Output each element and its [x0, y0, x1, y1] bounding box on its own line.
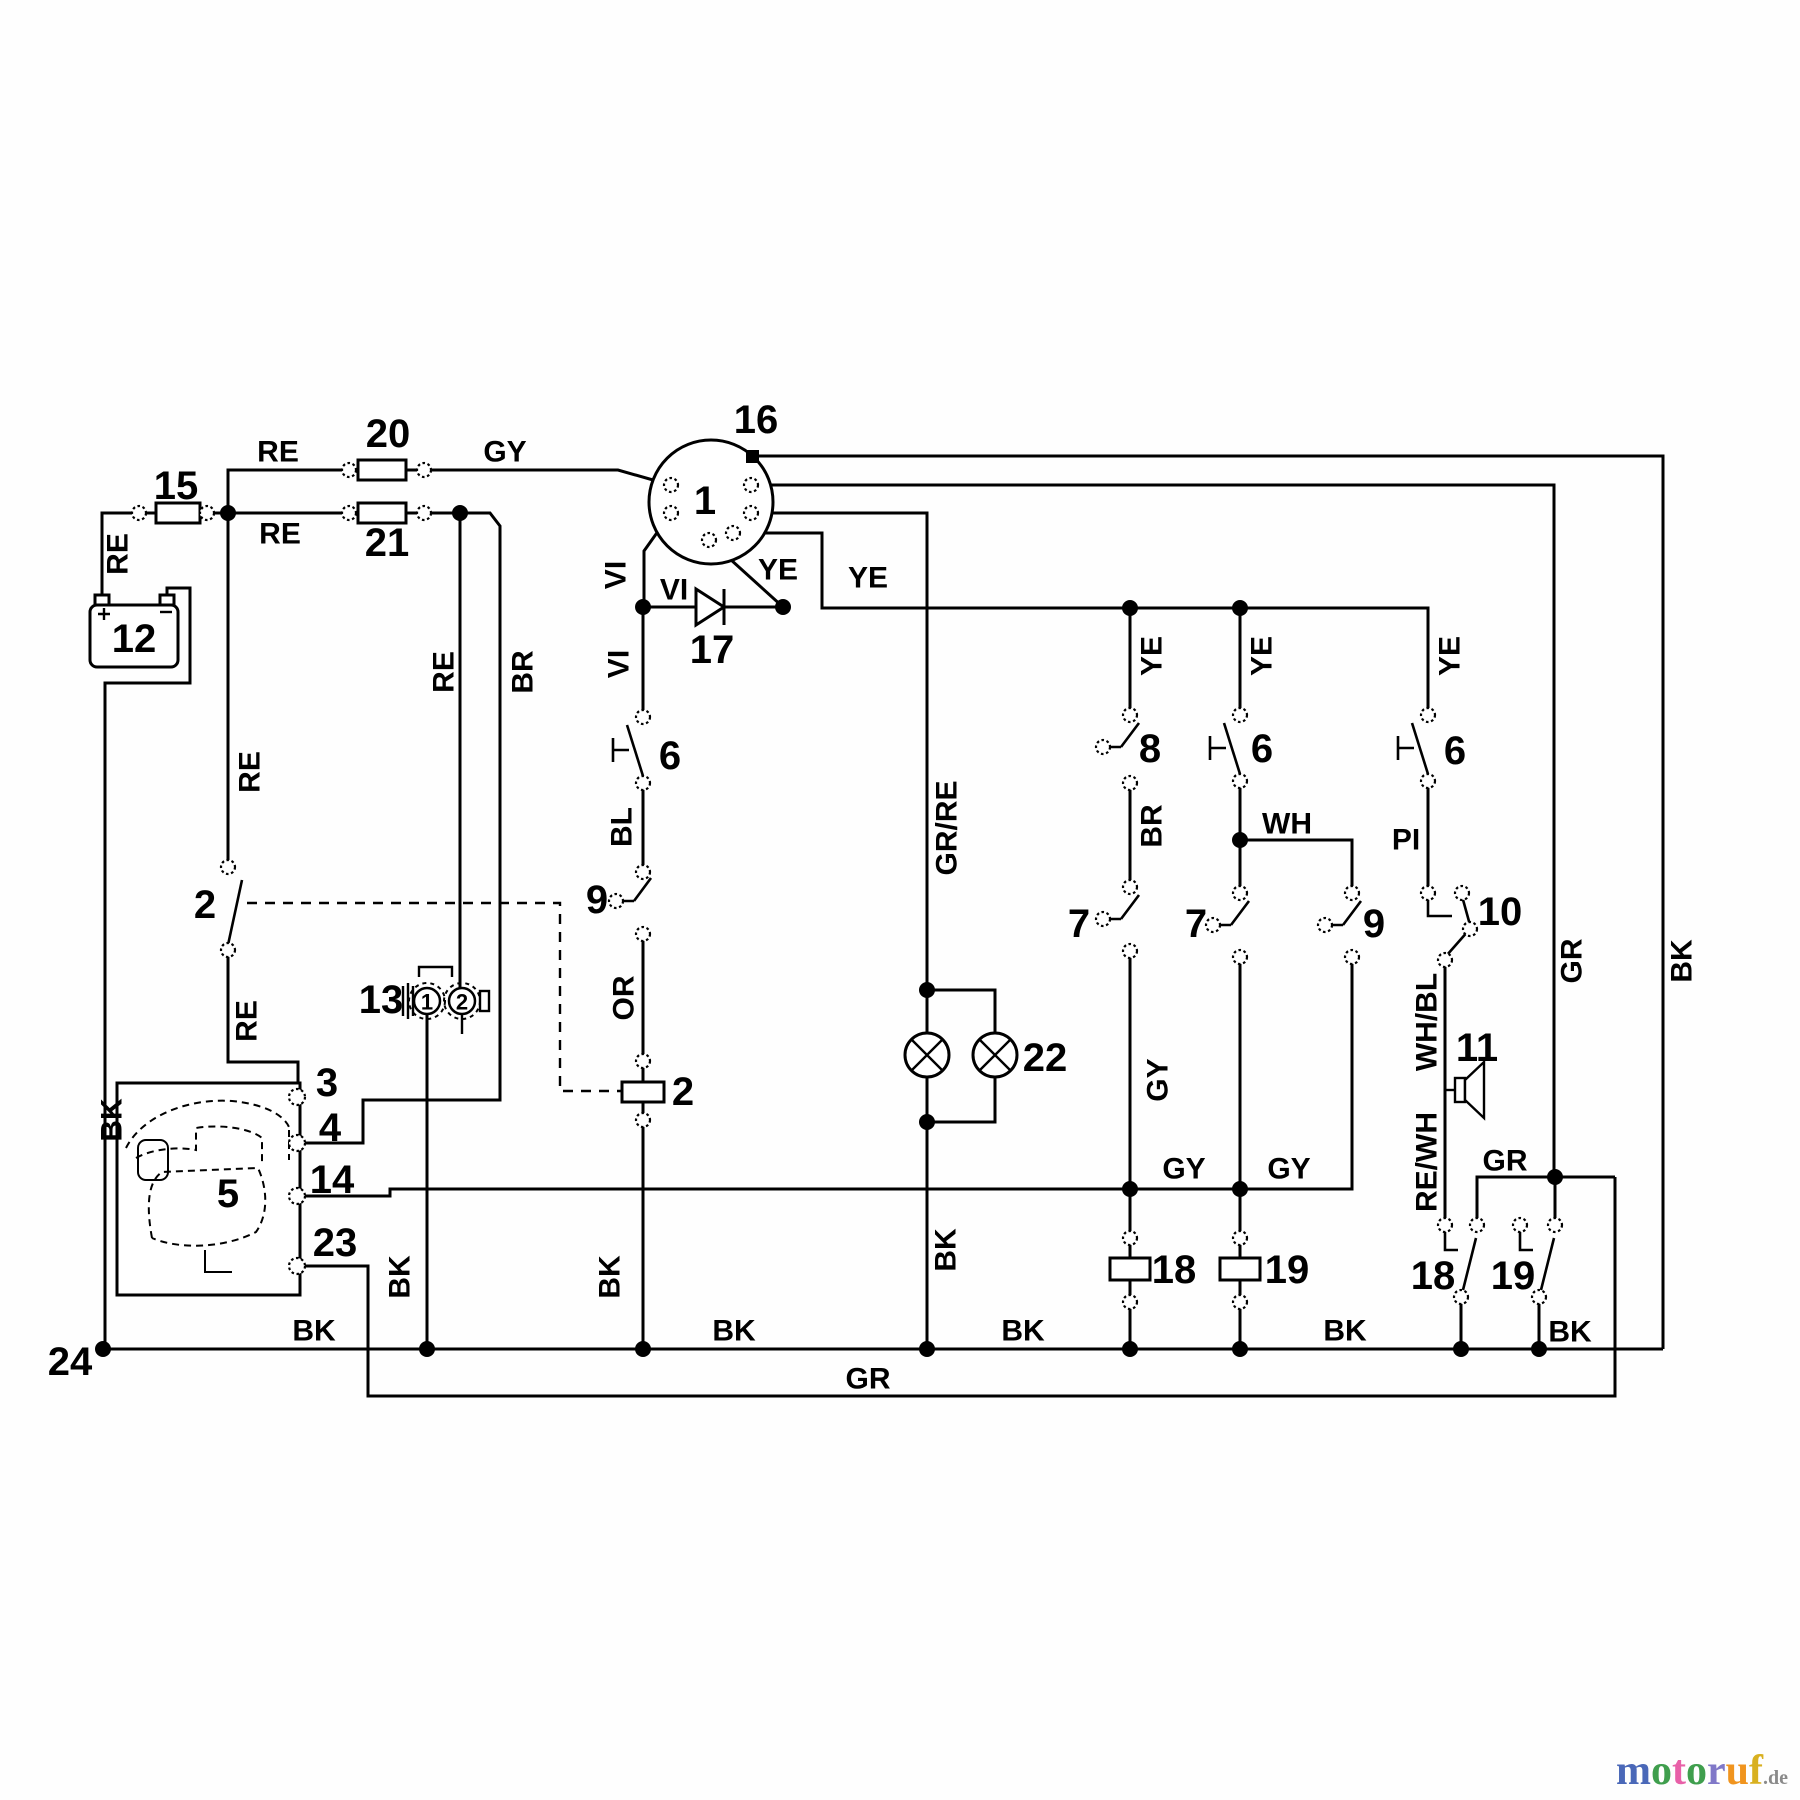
switch-9b-parts: [1332, 901, 1361, 925]
connector-stub: [480, 991, 489, 1011]
component-label-16: 16: [734, 398, 779, 442]
wire-label-ye: YE: [848, 562, 888, 595]
wire-gy-to-ignition: [406, 470, 667, 484]
wire-label-bk: BK: [712, 1315, 756, 1348]
horn-body: [1455, 1078, 1465, 1102]
wire-label-or: OR: [608, 975, 641, 1020]
switch-6b-blade: [1224, 723, 1240, 774]
wire-label-bl: BL: [606, 807, 639, 847]
watermark-letter: r: [1707, 1748, 1726, 1794]
component-label-10: 10: [1478, 890, 1523, 934]
relay-18: [1110, 1258, 1150, 1280]
wire-label-pi: PI: [1392, 824, 1420, 857]
horn-flare: [1465, 1062, 1484, 1118]
relay-19: [1220, 1258, 1260, 1280]
wire-label-gr: GR: [846, 1363, 891, 1396]
switch-6c-blade: [1412, 723, 1428, 774]
wire-label-gr: GR: [1483, 1145, 1528, 1178]
wire-label-bk: BK: [1666, 939, 1699, 983]
component-label-9: 9: [1363, 902, 1385, 946]
component-label-4: 4: [319, 1106, 342, 1150]
switch-2-blade: [228, 880, 242, 945]
wire-label-vi: VI: [600, 561, 633, 589]
wiring-diagram-page: REREREREREREBRGYVIVIVIYEYEYEYEYEBLORBRWH…: [0, 0, 1800, 1800]
wire-label-ye: YE: [1136, 636, 1169, 676]
component-label-1: 1: [694, 479, 716, 523]
connector-13: [403, 967, 489, 1019]
switch-6a-blade: [627, 725, 643, 776]
component-label-2: 2: [194, 883, 216, 927]
component-label-6: 6: [1251, 727, 1273, 771]
switch-9a-parts: [623, 878, 651, 901]
watermark-letters: motoruf: [1616, 1748, 1763, 1794]
wire-label-re: RE: [257, 436, 299, 469]
engine-box: [117, 1083, 300, 1295]
component-label-7: 7: [1185, 902, 1207, 946]
component-label-6: 6: [659, 734, 681, 778]
component-label-11: 11: [1456, 1026, 1498, 1070]
wire-ignition-bk-right: [752, 456, 1663, 1349]
switch-7b-parts: [1220, 901, 1249, 925]
watermark-letter: t: [1672, 1748, 1686, 1794]
engine-5: [117, 1083, 300, 1295]
watermark-letter: f: [1749, 1748, 1763, 1794]
diode-17: [696, 589, 724, 625]
switch-8-parts: [1110, 723, 1139, 747]
component-label-12: 12: [112, 617, 157, 661]
component-label-1: 1: [421, 990, 433, 1015]
switch-6a-actuator: [613, 738, 629, 762]
watermark-letter: o: [1686, 1748, 1707, 1794]
component-label-8: 8: [1139, 727, 1161, 771]
component-label-22: 22: [1023, 1036, 1068, 1080]
wire-label-re: RE: [259, 518, 301, 551]
watermark-suffix: .de: [1763, 1767, 1788, 1789]
wire-label-re: RE: [102, 533, 135, 575]
wire-label-bk: BK: [1001, 1315, 1045, 1348]
switch-6c-actuator: [1398, 736, 1414, 760]
connector-bracket: [419, 967, 452, 977]
component-label-23: 23: [313, 1221, 358, 1265]
component-label-19: 19: [1265, 1248, 1310, 1292]
fuse-21: [358, 503, 406, 523]
component-label-9: 9: [586, 878, 608, 922]
component-label-2: 2: [672, 1070, 694, 1114]
wire-label-ye: YE: [1434, 636, 1467, 676]
wire-label-gy: GY: [1142, 1058, 1175, 1101]
relay-coil: [1220, 1258, 1260, 1280]
component-label-15: 15: [154, 464, 199, 508]
relay-coil: [1110, 1258, 1150, 1280]
component-label-21: 21: [365, 521, 410, 565]
wire-label-gy: GY: [483, 436, 526, 469]
wire-label-gr: GR: [1556, 938, 1589, 983]
wire-ye-bus: [733, 533, 1428, 715]
component-label-20: 20: [366, 412, 411, 456]
wire-label-bk: BK: [594, 1255, 627, 1299]
wire-label-gy: GY: [1267, 1153, 1310, 1186]
diode-triangle: [696, 589, 724, 625]
component-label-3: 3: [316, 1061, 338, 1105]
component-label-17: 17: [690, 628, 735, 672]
wire-label-bk: BK: [96, 1098, 129, 1142]
component-label-24: 24: [48, 1340, 93, 1384]
fuse-body: [358, 460, 406, 480]
component-label-19: 19: [1491, 1254, 1536, 1298]
wire-re-top: [228, 470, 358, 513]
component-label-18: 18: [1152, 1248, 1197, 1292]
watermark-letter: u: [1726, 1748, 1749, 1794]
component-label-18: 18: [1411, 1254, 1456, 1298]
wiring-diagram: REREREREREREBRGYVIVIVIYEYEYEYEYEBLORBRWH…: [0, 0, 1800, 1800]
wire-label-gy: GY: [1162, 1153, 1205, 1186]
wire-label-re-wh: RE/WH: [1411, 1112, 1444, 1212]
fuse-body: [358, 503, 406, 523]
wire-label-br: BR: [1136, 804, 1169, 848]
wire-label-ye: YE: [1246, 636, 1279, 676]
wire-label-bk: BK: [1323, 1315, 1367, 1348]
relay-coil: [622, 1082, 664, 1102]
wire-label-bk: BK: [292, 1315, 336, 1348]
wire-label-ye: YE: [758, 554, 798, 587]
component-label-7: 7: [1068, 902, 1090, 946]
watermark-letter: o: [1651, 1748, 1672, 1794]
wire-label-br: BR: [507, 650, 540, 694]
wire-label-bk: BK: [1548, 1316, 1592, 1349]
switch-7a-parts: [1110, 895, 1139, 919]
component-label-13: 13: [359, 978, 404, 1022]
wire-label-wh-bl: WH/BL: [1411, 973, 1444, 1071]
component-label-6: 6: [1444, 729, 1466, 773]
wire-label-vi: VI: [603, 650, 636, 678]
component-label-5: 5: [217, 1172, 239, 1216]
component-label-2: 2: [456, 990, 468, 1015]
wire-label-vi: VI: [660, 574, 688, 607]
watermark-motoruf: motoruf.de: [1616, 1750, 1788, 1792]
wire-br-to-engine4: [297, 513, 500, 1143]
lamps-22: [905, 1033, 1017, 1077]
fuse-20: [358, 460, 406, 480]
switch-6b-actuator: [1210, 736, 1226, 760]
wire-label-re: RE: [428, 651, 461, 693]
wire-gr-segment: [1477, 1177, 1615, 1225]
relay-2: [622, 1082, 664, 1102]
wire-label-re: RE: [234, 751, 267, 793]
wire-label-bk: BK: [384, 1255, 417, 1299]
wire-label-gr-re: GR/RE: [931, 780, 964, 875]
wire-label-bk: BK: [930, 1228, 963, 1272]
wire-label-wh: WH: [1262, 808, 1312, 841]
watermark-letter: m: [1616, 1748, 1651, 1794]
wire-label-re: RE: [231, 1000, 264, 1042]
component-label-14: 14: [310, 1158, 355, 1202]
ignition-terminal-square: [746, 450, 759, 463]
horn-11: [1445, 1062, 1484, 1118]
wire-wh: [1240, 840, 1352, 893]
